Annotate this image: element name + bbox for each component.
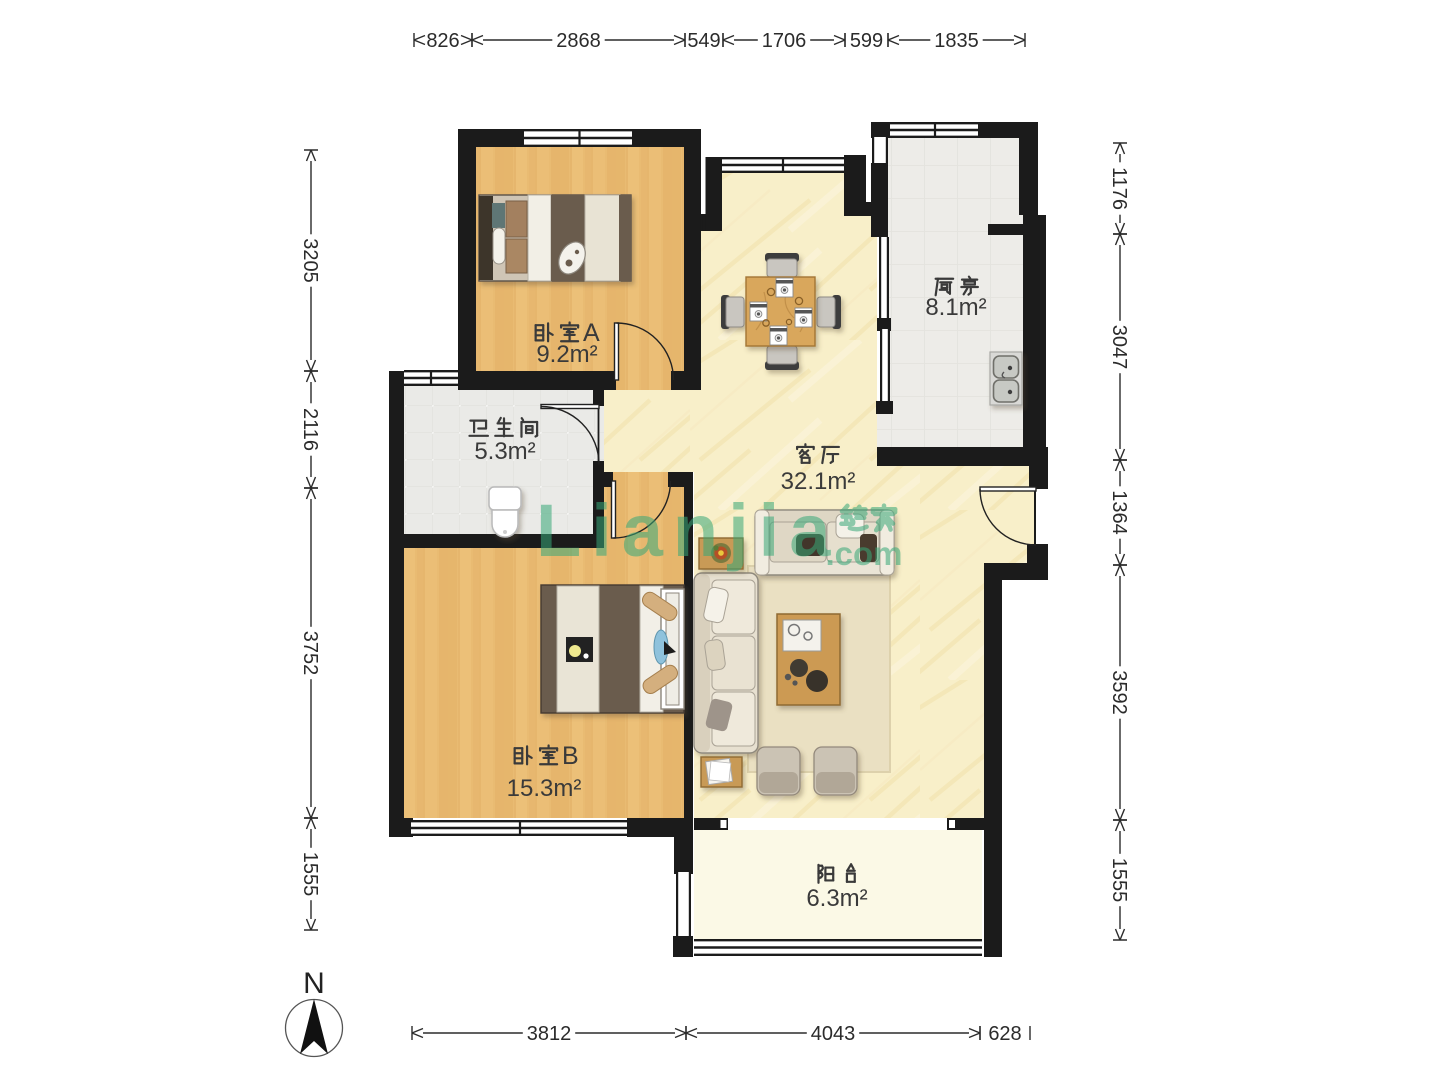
svg-text:4043: 4043 (811, 1023, 856, 1045)
svg-text:1555: 1555 (1108, 858, 1130, 903)
svg-text:599: 599 (850, 30, 883, 52)
svg-text:1706: 1706 (762, 30, 807, 52)
svg-text:1364: 1364 (1108, 490, 1130, 535)
svg-text:1555: 1555 (299, 852, 321, 897)
svg-text:6.3m²: 6.3m² (806, 885, 867, 912)
svg-text:3047: 3047 (1108, 325, 1130, 370)
svg-text:2868: 2868 (556, 30, 601, 52)
svg-text:B: B (562, 742, 579, 770)
svg-text:826: 826 (426, 30, 459, 52)
svg-text:8.1m²: 8.1m² (925, 294, 986, 321)
svg-text:Lianjia: Lianjia (536, 489, 840, 572)
svg-text:628: 628 (988, 1023, 1021, 1045)
svg-text:3812: 3812 (527, 1023, 572, 1045)
svg-text:5.3m²: 5.3m² (474, 438, 535, 465)
svg-text:3592: 3592 (1108, 670, 1130, 715)
svg-text:3205: 3205 (299, 238, 321, 283)
svg-text:1176: 1176 (1108, 167, 1130, 210)
svg-text:1835: 1835 (934, 30, 979, 52)
svg-text:2116: 2116 (299, 408, 321, 451)
svg-text:9.2m²: 9.2m² (536, 341, 597, 368)
svg-text:15.3m²: 15.3m² (507, 775, 582, 802)
svg-text:3752: 3752 (299, 631, 321, 676)
svg-text:.com: .com (825, 535, 902, 572)
svg-text:N: N (303, 967, 325, 1000)
svg-text:549: 549 (687, 30, 720, 52)
